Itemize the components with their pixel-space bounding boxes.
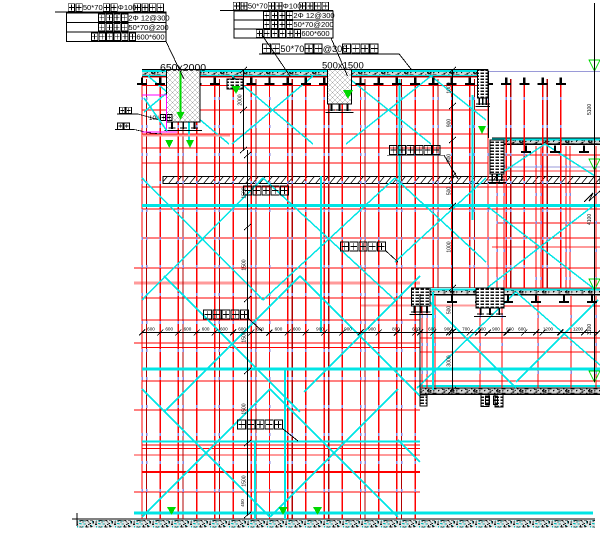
svg-text:600: 600	[238, 327, 246, 332]
svg-text:1200: 1200	[573, 327, 584, 332]
svg-text:600: 600	[428, 327, 436, 332]
svg-text:50*70: 50*70	[83, 3, 103, 12]
svg-text:900: 900	[344, 327, 352, 332]
svg-text:900: 900	[316, 327, 324, 332]
svg-text:4100: 4100	[587, 214, 593, 225]
svg-text:50*70@200: 50*70@200	[293, 20, 333, 29]
svg-text:500x1500: 500x1500	[322, 61, 364, 72]
svg-text:600*600: 600*600	[136, 33, 164, 42]
svg-text:2Φ 12@300: 2Φ 12@300	[128, 14, 169, 23]
svg-text:3100: 3100	[587, 324, 593, 335]
svg-text:650x2000: 650x2000	[160, 62, 206, 74]
svg-text:5100: 5100	[587, 104, 593, 115]
svg-text:600: 600	[275, 327, 283, 332]
svg-text:900: 900	[447, 119, 453, 128]
svg-text:600: 600	[518, 327, 526, 332]
svg-text:50*70: 50*70	[248, 2, 268, 11]
svg-text:500: 500	[447, 187, 453, 196]
svg-text:1500: 1500	[242, 187, 248, 198]
svg-text:600: 600	[412, 327, 420, 332]
svg-text:1000: 1000	[447, 82, 453, 93]
svg-text:700: 700	[462, 327, 470, 332]
svg-text:600: 600	[478, 327, 486, 332]
svg-text:500: 500	[447, 306, 453, 315]
svg-text:450: 450	[240, 499, 245, 507]
svg-text:900: 900	[368, 327, 376, 332]
svg-text:Φ100: Φ100	[118, 3, 137, 12]
svg-text:600: 600	[165, 327, 173, 332]
svg-text:600: 600	[202, 327, 210, 332]
svg-text:600: 600	[220, 327, 228, 332]
svg-text:900: 900	[444, 327, 452, 332]
svg-text:800: 800	[392, 327, 400, 332]
svg-text:1500: 1500	[242, 403, 248, 414]
svg-text:600: 600	[147, 327, 155, 332]
svg-text:50*70: 50*70	[280, 44, 304, 54]
svg-text:2Φ 12@300: 2Φ 12@300	[293, 11, 334, 20]
svg-text:1000: 1000	[447, 241, 453, 252]
svg-text:2000: 2000	[238, 94, 244, 105]
svg-text:1500: 1500	[242, 475, 248, 486]
svg-text:1500: 1500	[242, 259, 248, 270]
svg-text:50*70@200: 50*70@200	[128, 23, 168, 32]
svg-text:900: 900	[492, 327, 500, 332]
svg-text:600: 600	[184, 327, 192, 332]
svg-text:3000: 3000	[447, 355, 453, 366]
svg-text:600*600: 600*600	[301, 29, 329, 38]
svg-text:Φ100: Φ100	[283, 2, 302, 11]
svg-text:1200: 1200	[543, 327, 554, 332]
svg-text:600: 600	[293, 327, 301, 332]
svg-text:600: 600	[506, 327, 514, 332]
